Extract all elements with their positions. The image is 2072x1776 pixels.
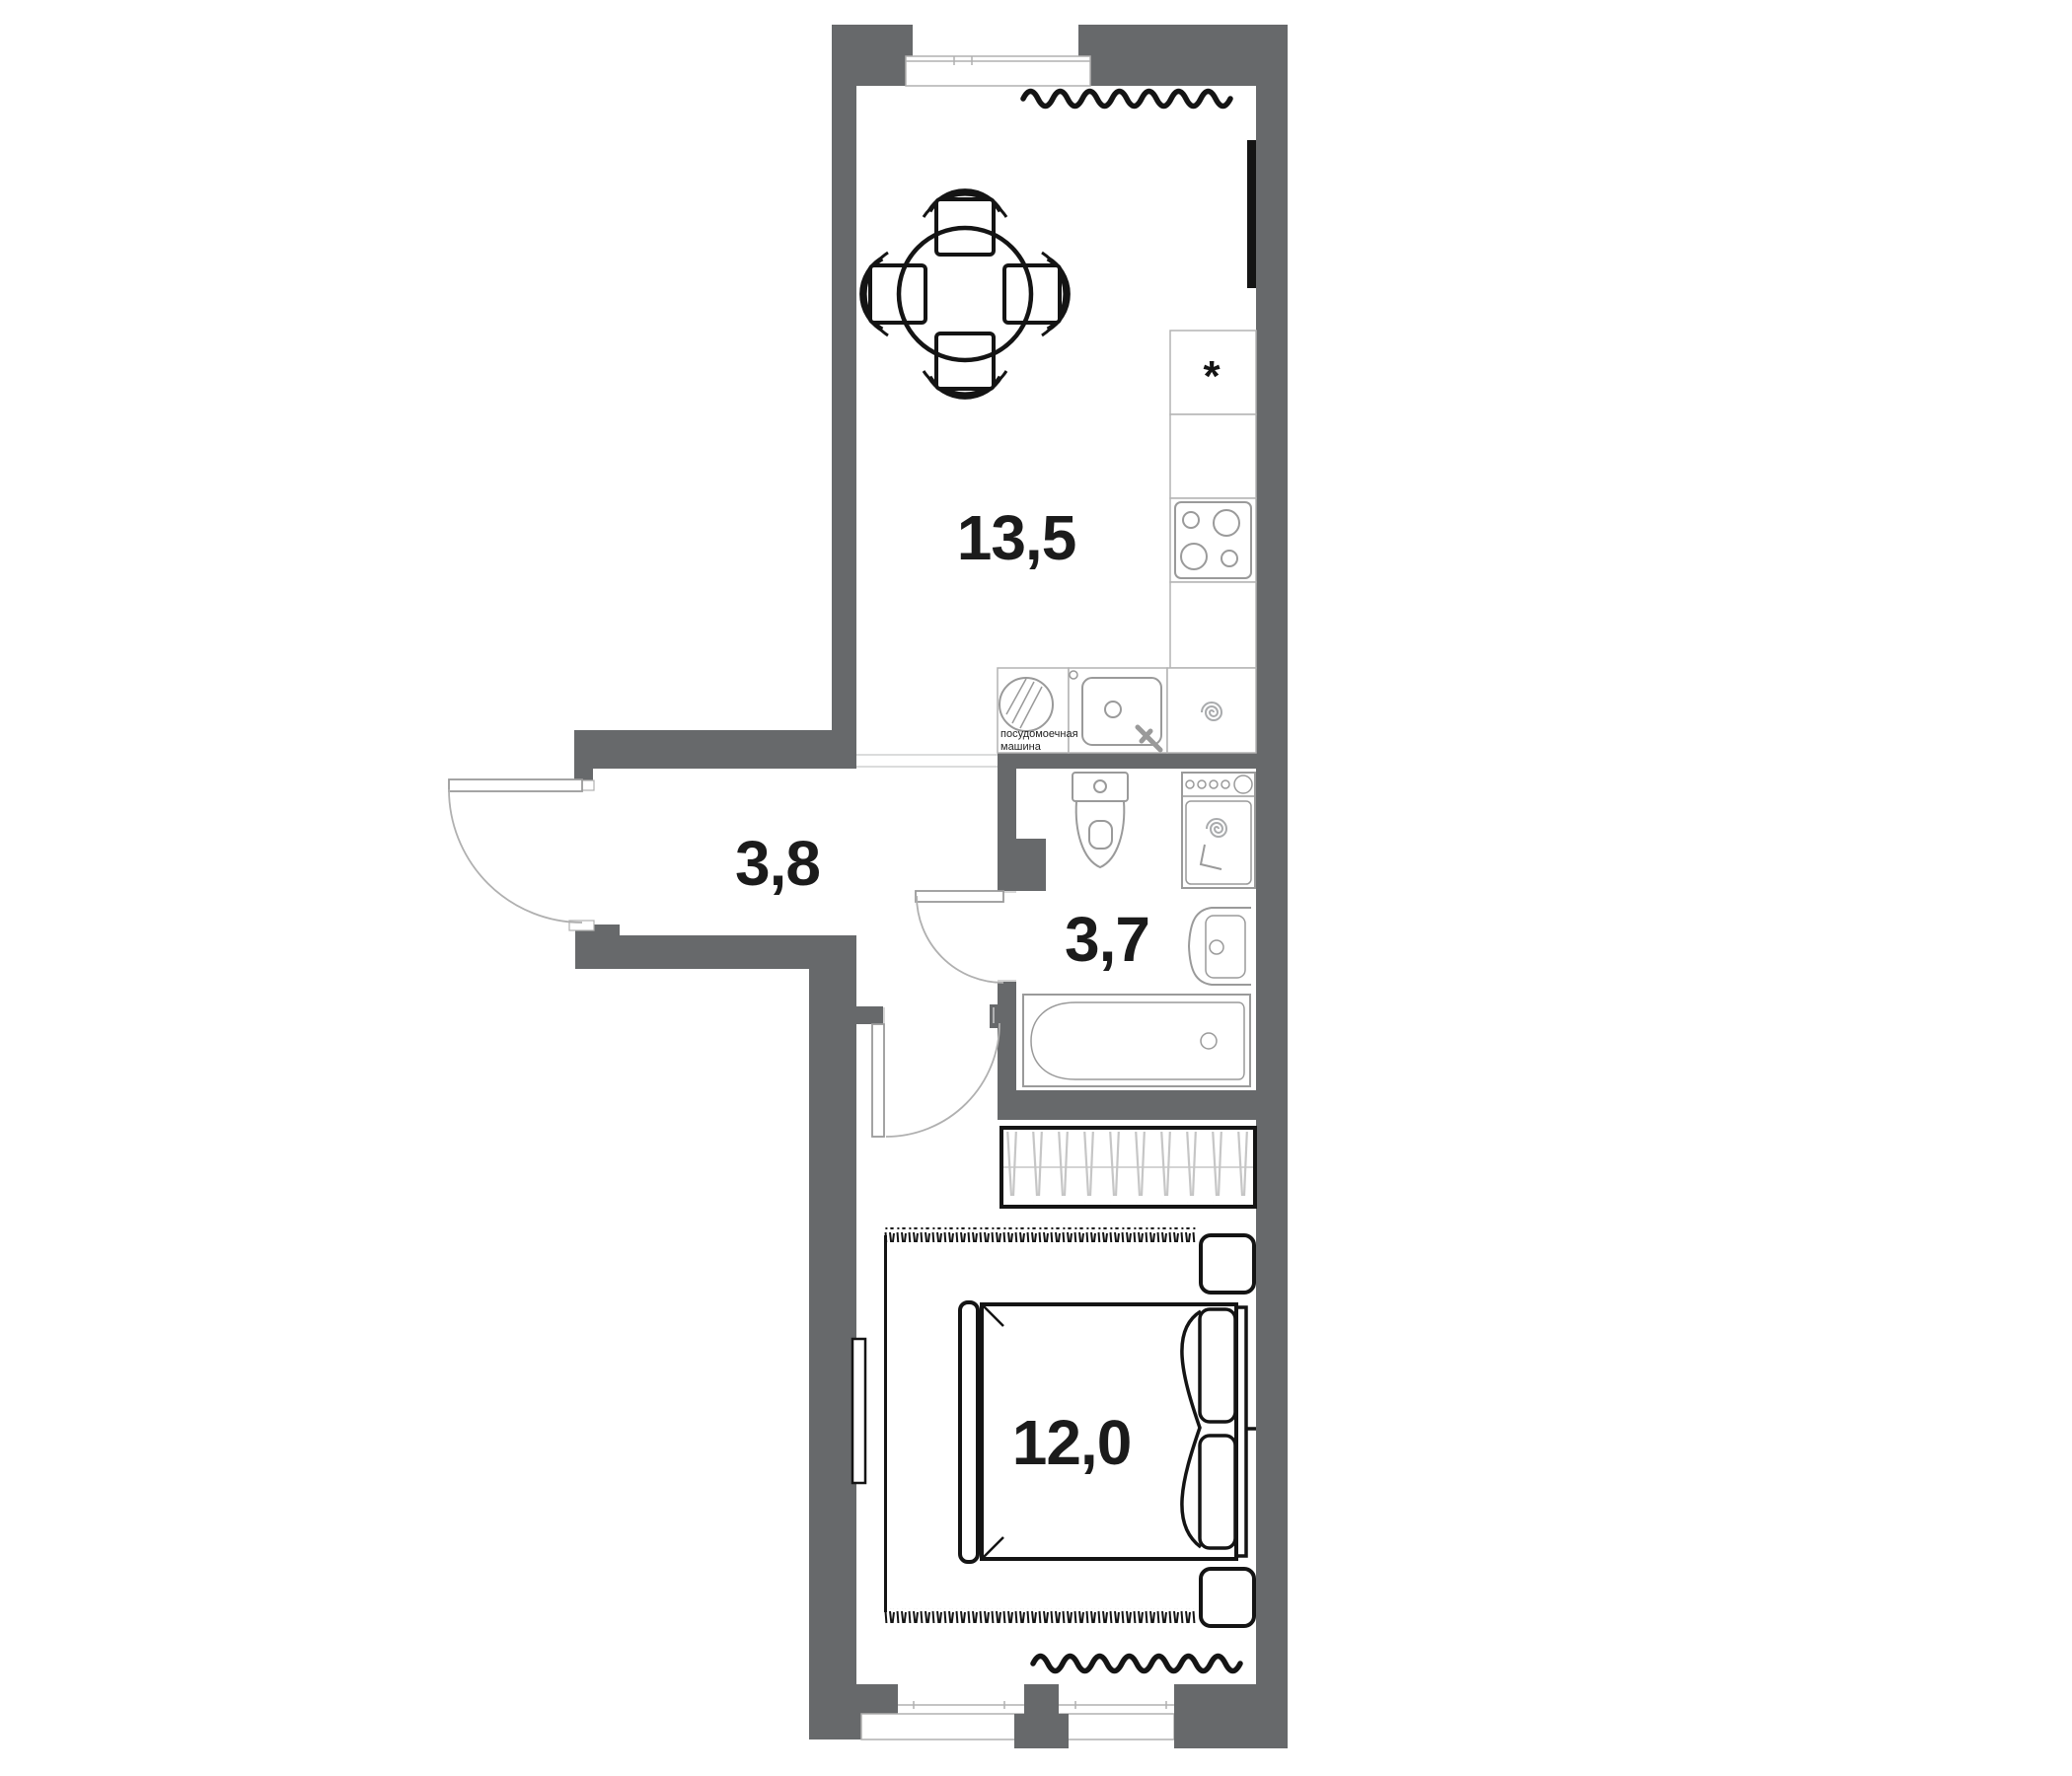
dishwasher-label-line1: посудомоечная <box>1000 728 1078 740</box>
floor-plan: * посудомоечная машина <box>0 0 2072 1776</box>
pillow-1 <box>1200 1309 1235 1422</box>
washing-machine <box>1182 773 1255 888</box>
floor-plan-drawing: * посудомоечная машина <box>0 0 2072 1776</box>
wall-bottom-left-a <box>809 1684 898 1714</box>
toilet <box>1073 773 1128 867</box>
wall-bedroom-partition-left <box>856 1006 883 1024</box>
dining-set <box>862 191 1069 398</box>
counter-cabinet-1 <box>1170 414 1256 498</box>
washbasin <box>1189 908 1251 985</box>
chair-left <box>862 253 925 335</box>
wall-hallway-bottom <box>575 935 856 969</box>
bedroom-door <box>872 1007 999 1137</box>
entry-door-panel <box>449 779 582 791</box>
bedroom-window-1 <box>898 1684 1024 1714</box>
room-label-bathroom: 3,7 <box>1065 903 1149 976</box>
chair-top <box>924 191 1006 255</box>
bed-headboard <box>1236 1307 1256 1556</box>
wall-bedroom-partition-right <box>995 1006 1009 1024</box>
wall-bathroom-left-upper <box>998 769 1016 839</box>
stove-cabinet <box>1170 498 1256 582</box>
chair-right <box>1004 253 1068 335</box>
rug-fringe-top <box>883 1227 1197 1242</box>
fridge-mark: * <box>1203 352 1221 401</box>
room-label-hallway: 3,8 <box>735 827 820 900</box>
wall-bottom-left-b <box>809 1714 861 1739</box>
entry-door-swing <box>449 789 582 923</box>
bedroom-door-panel <box>872 1024 884 1137</box>
rug-fringe-bottom <box>883 1608 1197 1623</box>
zone-boundary-line <box>856 755 998 767</box>
wall-bottom-right-block <box>1174 1684 1288 1748</box>
wall-hallway-top <box>574 730 856 769</box>
room-label-bedroom: 12,0 <box>1012 1406 1132 1479</box>
wall-bedroom-left <box>809 969 856 1739</box>
bed-footboard <box>960 1302 978 1562</box>
wall-top-left <box>832 25 913 86</box>
counter-cabinet-2 <box>1170 582 1256 668</box>
wardrobe <box>1001 1128 1255 1207</box>
wall-bathroom-door-pier <box>998 839 1046 891</box>
duct-bar <box>1247 140 1256 288</box>
nightstand-top <box>1201 1235 1254 1293</box>
bathroom-door-swing <box>917 896 1003 983</box>
kitchen-window-opening <box>913 25 1078 57</box>
bathtub <box>1023 995 1250 1086</box>
bathroom-door <box>916 891 1016 983</box>
radiator-kitchen <box>1023 92 1230 107</box>
bedroom-window-2 <box>1059 1684 1174 1714</box>
wall-bathroom-bottom <box>1009 1090 1256 1120</box>
wall-right <box>1256 25 1288 1748</box>
entry-door <box>449 779 594 930</box>
wall-bottom-center-pier-a <box>1024 1684 1059 1714</box>
wall-kitchen-left <box>832 86 856 730</box>
pillow-2 <box>1200 1436 1235 1548</box>
wall-kitchen-bathroom <box>998 753 1256 769</box>
chair-bottom <box>924 333 1006 397</box>
bedroom-door-swing <box>886 1023 999 1137</box>
nightstand-bottom <box>1201 1569 1254 1626</box>
wall-bottom-center-pier-b <box>1014 1714 1069 1748</box>
bathroom-door-panel <box>916 891 1003 902</box>
bedroom-wall-niche <box>852 1339 865 1483</box>
dishwasher-label-line2: машина <box>1000 741 1042 753</box>
radiator-bedroom <box>1033 1657 1240 1671</box>
room-label-kitchen-living: 13,5 <box>957 501 1076 574</box>
